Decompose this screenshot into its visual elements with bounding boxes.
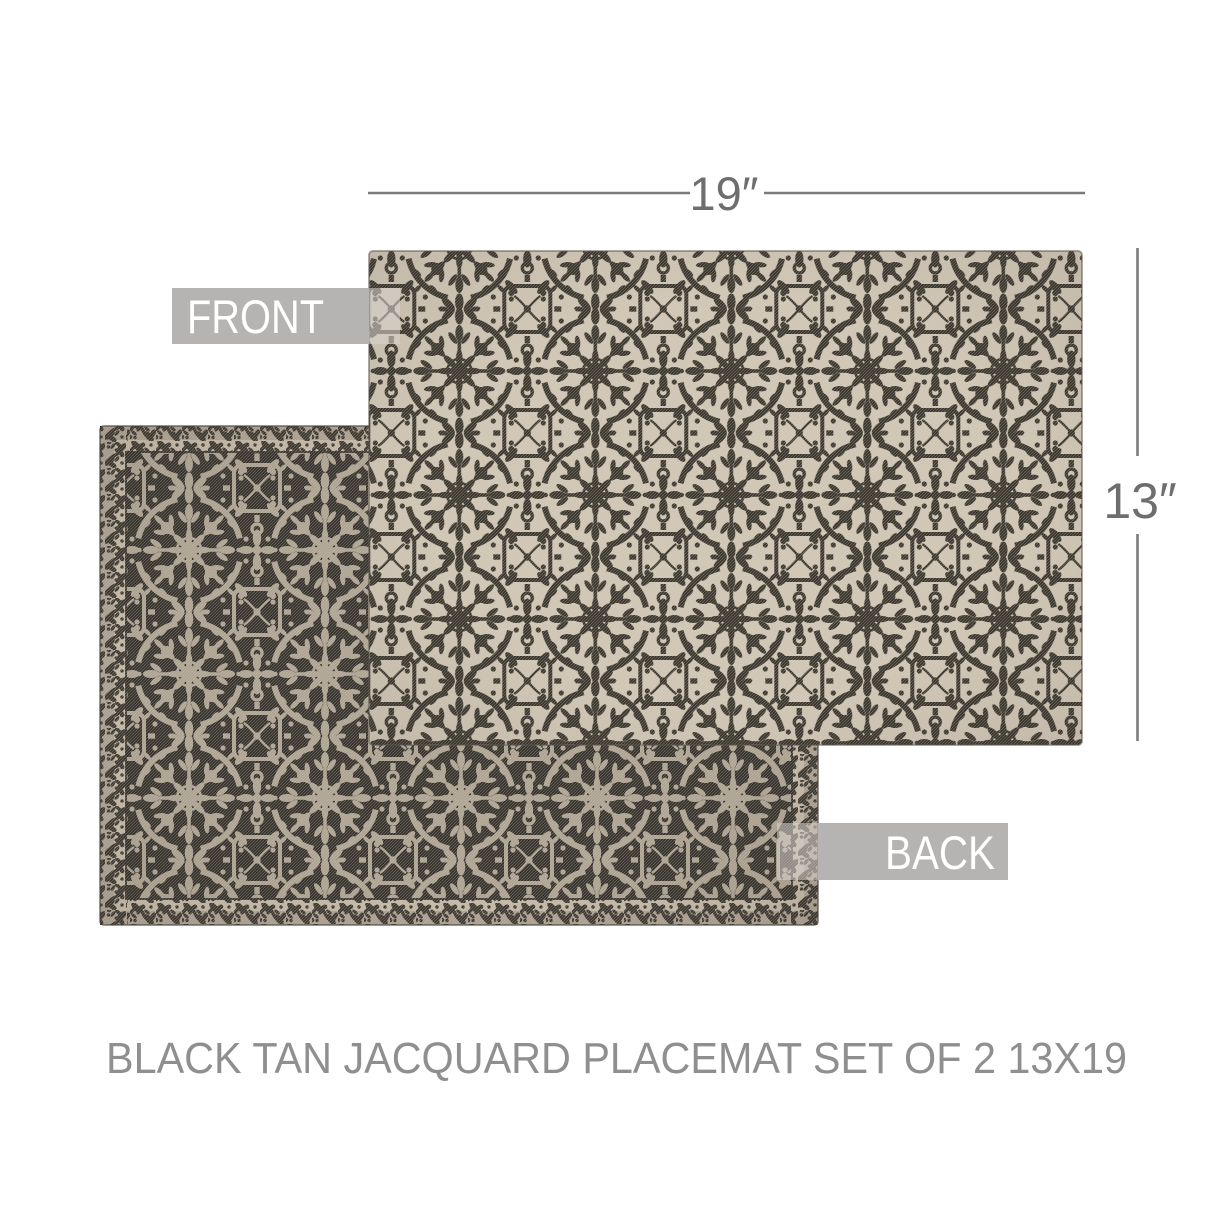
svg-text:19″: 19″ (690, 167, 759, 220)
svg-text:BLACK TAN JACQUARD PLACEMAT SE: BLACK TAN JACQUARD PLACEMAT SET OF 2 13X… (106, 1034, 1127, 1083)
svg-text:BACK: BACK (885, 826, 995, 879)
svg-text:13″: 13″ (1103, 473, 1176, 529)
svg-text:FRONT: FRONT (187, 290, 324, 343)
